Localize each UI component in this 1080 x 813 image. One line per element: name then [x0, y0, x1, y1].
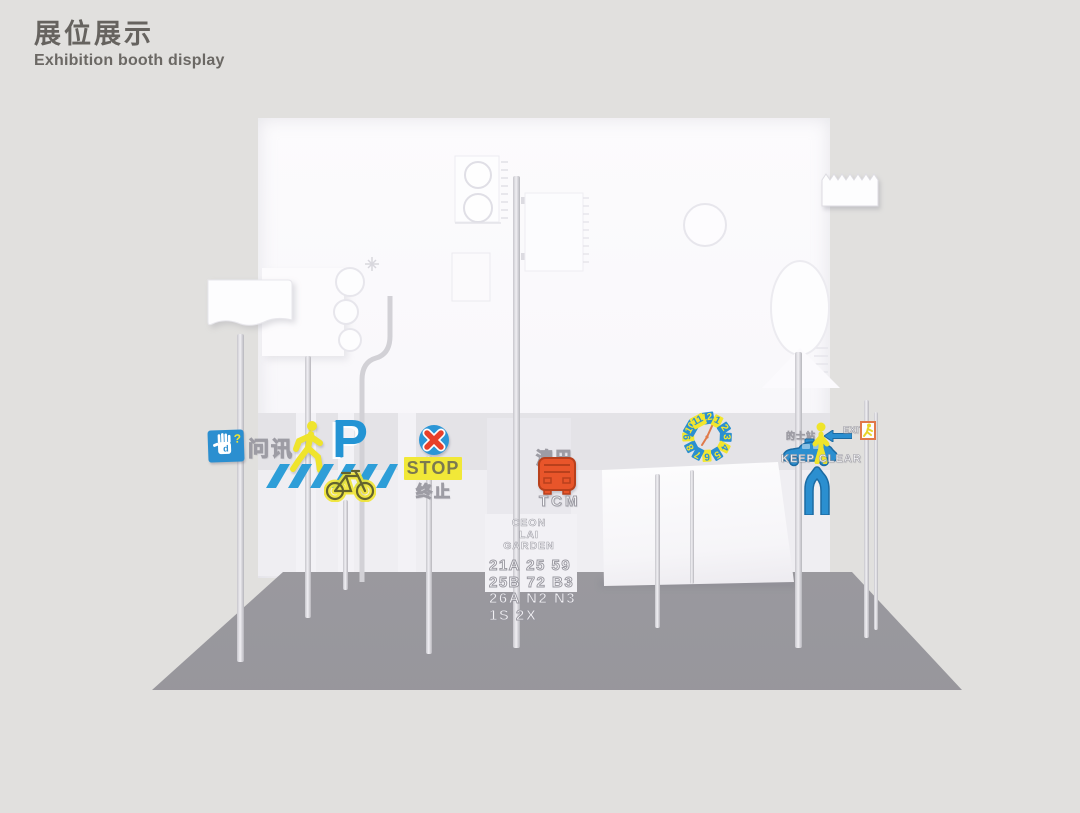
- parking-sign: P: [332, 412, 368, 466]
- lollipop-tree-silhouette: [762, 256, 846, 390]
- keep-clear-label: KEEP CLEAR: [781, 453, 862, 465]
- bus-route-numbers: 21A 25 59 25B 72 B3 26A N2 N3 1S 2X: [489, 558, 576, 624]
- bus-company-en: TCM: [539, 493, 581, 510]
- svg-text:d: d: [223, 443, 229, 453]
- bus-route-row: 25B 72 B3: [489, 575, 576, 592]
- bus-stop-name-line: GARDEN: [487, 541, 571, 553]
- sign-pole: [655, 474, 660, 628]
- bus-stop-name: CEON LAI GARDEN: [487, 518, 571, 553]
- hand-question-icon: d ?: [207, 429, 244, 462]
- sign-pole: [343, 500, 348, 590]
- page-title: 展位展示: [34, 20, 225, 50]
- zigzag-board-silhouette: [452, 253, 490, 301]
- flag-sign-silhouette: [202, 276, 294, 338]
- round-sign-silhouette: [684, 204, 726, 246]
- stop-sign-word-zh: 终止: [416, 478, 452, 502]
- serrated-box: [820, 168, 882, 210]
- leaning-white-board: [598, 458, 796, 586]
- number-clock: 12 1 2 3 4 5 6 7 8 9 10 11: [683, 413, 731, 461]
- bicycle-icon: [324, 464, 376, 502]
- information-sign: d ?: [207, 429, 244, 462]
- sign-pole: [874, 412, 878, 630]
- bus-route-row: 26A N2 N3: [489, 591, 576, 608]
- bus-stop-name-line: CEON: [487, 518, 571, 530]
- bus-route-row: 1S 2X: [489, 608, 576, 625]
- traffic-light-silhouette: [455, 156, 508, 223]
- road-fork-icon: [800, 465, 834, 515]
- svg-text:?: ?: [234, 431, 242, 445]
- exit-sign-icon: [860, 421, 876, 440]
- bus-route-row: 21A 25 59: [489, 558, 576, 575]
- page-title-block: 展位展示 Exhibition booth display: [34, 20, 225, 70]
- exhibition-booth-scene: 展位展示 Exhibition booth display: [0, 0, 1080, 813]
- stop-sign-word: STOP: [404, 457, 462, 480]
- signpost-silhouette: [521, 193, 589, 271]
- clock-hands: [683, 413, 731, 461]
- page-subtitle: Exhibition booth display: [34, 52, 225, 70]
- no-entry-icon: [418, 424, 450, 456]
- bus-icon: [536, 456, 578, 495]
- sign-pole: [237, 334, 244, 662]
- sign-pole: [690, 470, 694, 584]
